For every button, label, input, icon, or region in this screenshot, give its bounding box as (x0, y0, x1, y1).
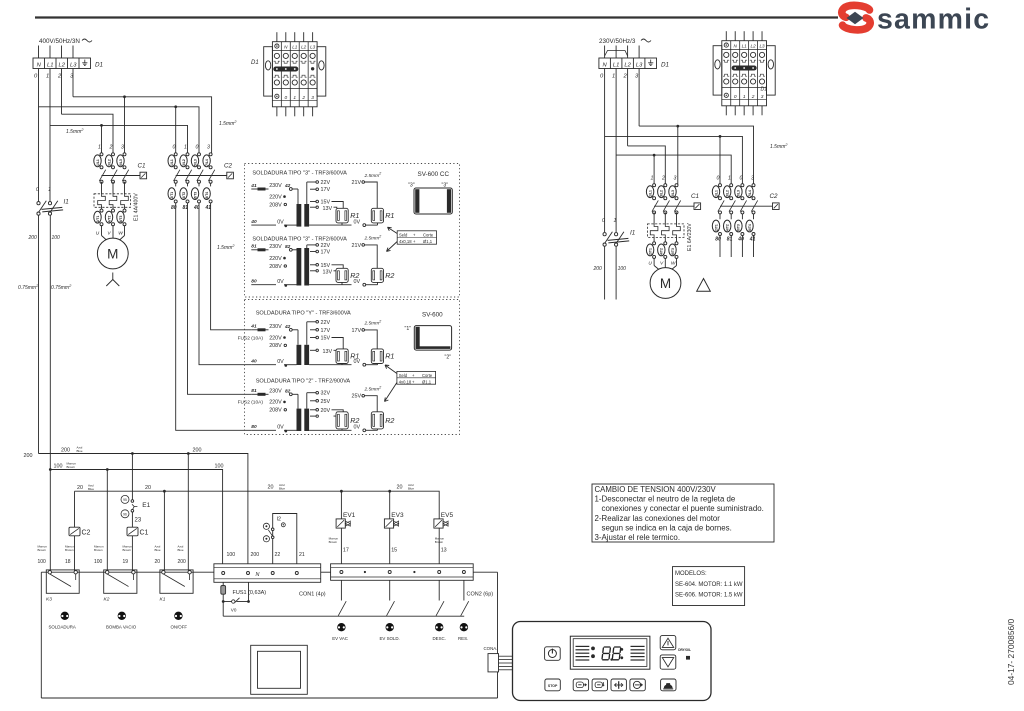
svg-text:Corte: Corte (422, 373, 433, 378)
svg-text:D1: D1 (761, 87, 768, 93)
svg-text:81: 81 (251, 388, 257, 394)
svg-text:04-17- 2700856/0: 04-17- 2700856/0 (1006, 619, 1016, 685)
svg-text:CON1 (4p): CON1 (4p) (299, 592, 326, 598)
svg-text:0V: 0V (277, 425, 284, 431)
svg-text:5/L3: 5/L3 (737, 190, 741, 197)
svg-text:22V: 22V (321, 180, 331, 186)
svg-text:100: 100 (227, 552, 236, 558)
svg-text:R2: R2 (385, 416, 394, 425)
svg-text:2/T1: 2/T1 (714, 224, 718, 231)
svg-text:220V: 220V (269, 256, 282, 262)
svg-text:Brown: Brown (94, 548, 103, 552)
svg-text:13V: 13V (323, 269, 333, 275)
svg-text:1-Desconectar el neutro de la: 1-Desconectar el neutro de la regleta de (595, 495, 736, 504)
svg-text:0: 0 (173, 145, 176, 151)
svg-text:4x0,18: 4x0,18 (399, 239, 412, 244)
svg-text:L1: L1 (47, 62, 53, 68)
svg-text:220V: 220V (269, 335, 282, 341)
svg-text:C2: C2 (224, 163, 233, 170)
svg-text:6/T3: 6/T3 (193, 192, 197, 199)
svg-text:208V: 208V (269, 202, 282, 208)
svg-text:Blue: Blue (279, 486, 285, 490)
svg-text:3: 3 (761, 94, 764, 100)
svg-text:25V: 25V (352, 394, 362, 400)
svg-text:96: 96 (123, 513, 127, 517)
svg-text:100: 100 (38, 559, 47, 565)
svg-text:6/T3: 6/T3 (671, 248, 675, 255)
svg-text:0: 0 (740, 176, 743, 182)
svg-text:I1: I1 (630, 230, 635, 237)
svg-text:EV3: EV3 (391, 512, 404, 519)
svg-text:K1: K1 (160, 597, 166, 603)
svg-text:L1: L1 (613, 62, 619, 68)
svg-text:0: 0 (717, 176, 720, 182)
svg-text:20: 20 (77, 485, 83, 491)
svg-text:22: 22 (275, 552, 281, 558)
svg-text:4x0,18: 4x0,18 (399, 379, 412, 384)
svg-text:220V: 220V (269, 400, 282, 406)
svg-text:1/L1: 1/L1 (96, 159, 100, 166)
svg-text:Brown: Brown (67, 465, 76, 469)
svg-text:208V: 208V (269, 264, 282, 270)
svg-text:L2: L2 (751, 43, 757, 48)
svg-text:L3: L3 (70, 62, 77, 68)
svg-text:17: 17 (343, 548, 349, 554)
svg-text:C1: C1 (138, 163, 146, 170)
svg-text:Blue: Blue (408, 486, 414, 490)
svg-text:"2": "2" (445, 355, 452, 361)
svg-text:2/T1: 2/T1 (648, 248, 652, 255)
svg-text:4/T2: 4/T2 (660, 248, 664, 255)
svg-text:7/L4: 7/L4 (205, 159, 209, 166)
svg-text:SOLDADURA TIPO "3" - TRF3/600V: SOLDADURA TIPO "3" - TRF3/600VA (252, 171, 347, 177)
svg-text:E1: E1 (142, 502, 150, 509)
svg-text:Corte: Corte (423, 232, 434, 237)
svg-text:21: 21 (299, 552, 305, 558)
svg-text:208V: 208V (269, 408, 282, 414)
svg-text:SV-600: SV-600 (422, 312, 443, 319)
svg-text:1: 1 (728, 176, 731, 182)
svg-text:0.75mm2: 0.75mm2 (51, 283, 72, 291)
svg-text:Blue: Blue (88, 487, 94, 491)
svg-text:R1: R1 (385, 352, 394, 361)
svg-text:22V: 22V (321, 320, 331, 326)
svg-text:EV1: EV1 (343, 512, 356, 519)
svg-text:200: 200 (251, 552, 260, 558)
svg-text:1: 1 (612, 74, 615, 80)
svg-text:15V: 15V (321, 200, 331, 206)
svg-text:3: 3 (751, 176, 754, 182)
svg-text:5/L3: 5/L3 (119, 159, 123, 166)
svg-text:4/T2: 4/T2 (107, 216, 111, 223)
svg-text:3/L2: 3/L2 (107, 159, 111, 166)
svg-text:80: 80 (251, 424, 257, 430)
svg-text:SV-600 CC: SV-600 CC (418, 171, 450, 178)
svg-text:CAMBIO DE TENSION 400V/230V: CAMBIO DE TENSION 400V/230V (595, 485, 717, 494)
svg-text:21V: 21V (352, 180, 362, 186)
svg-text:C1: C1 (691, 193, 699, 200)
svg-text:208V: 208V (269, 343, 282, 349)
svg-text:23: 23 (135, 518, 142, 524)
svg-text:"3": "3" (408, 183, 415, 189)
svg-text:RES.: RES. (458, 636, 468, 641)
svg-text:230V: 230V (269, 183, 282, 189)
svg-text:6/T3: 6/T3 (119, 216, 123, 223)
svg-text:Blue: Blue (155, 548, 161, 552)
svg-text:Brown: Brown (123, 548, 132, 552)
svg-text:230V/50Hz/3: 230V/50Hz/3 (599, 38, 636, 45)
svg-text:20: 20 (145, 485, 151, 491)
svg-text:1: 1 (651, 176, 654, 182)
svg-text:L2: L2 (58, 62, 65, 68)
svg-text:2-Realizar las conexiones del: 2-Realizar las conexiones del motor (595, 514, 721, 523)
svg-text:R2: R2 (350, 416, 359, 425)
svg-text:W: W (118, 231, 123, 237)
svg-text:40: 40 (737, 237, 744, 243)
svg-text:3: 3 (121, 145, 124, 151)
svg-text:13V: 13V (323, 349, 333, 355)
svg-text:D1: D1 (661, 62, 669, 69)
svg-text:32V: 32V (321, 391, 331, 397)
svg-text:25V: 25V (321, 399, 331, 405)
svg-text:L2: L2 (624, 62, 631, 68)
svg-text:FUS2 (10A): FUS2 (10A) (238, 335, 264, 341)
svg-text:SE-604. MOTOR: 1.1 kW: SE-604. MOTOR: 1.1 kW (675, 582, 743, 588)
svg-text:M: M (660, 276, 671, 291)
svg-text:20: 20 (268, 485, 274, 491)
svg-text:Brown: Brown (435, 540, 444, 544)
svg-text:100: 100 (54, 464, 63, 470)
svg-text:5/L3: 5/L3 (671, 190, 675, 197)
svg-text:Seld: Seld (399, 232, 408, 237)
svg-text:R1: R1 (385, 211, 394, 220)
svg-text:17V: 17V (321, 187, 331, 193)
svg-text:1/L1: 1/L1 (714, 190, 718, 197)
svg-text:1: 1 (48, 187, 51, 193)
svg-text:81: 81 (251, 244, 257, 250)
svg-text:SOLDADURA TIPO "Y" - TRF3/600V: SOLDADURA TIPO "Y" - TRF3/600VA (256, 311, 351, 317)
svg-text:U: U (96, 231, 100, 237)
svg-text:L3: L3 (636, 62, 643, 68)
svg-text:18: 18 (65, 559, 71, 565)
svg-text:SOLDADURA TIPO "3" - TRF2/600V: SOLDADURA TIPO "3" - TRF2/600VA (252, 237, 347, 243)
svg-text:EV SOLD.: EV SOLD. (380, 636, 400, 641)
svg-text:220V: 220V (269, 194, 282, 200)
svg-text:230V: 230V (269, 389, 282, 395)
svg-text:D1: D1 (251, 60, 259, 66)
svg-text:2: 2 (109, 145, 113, 151)
svg-text:0V: 0V (277, 220, 284, 226)
svg-text:3-Ajustar el rele termico.: 3-Ajustar el rele termico. (595, 533, 681, 542)
svg-text:Ø1,1: Ø1,1 (422, 379, 432, 384)
svg-text:2/T1: 2/T1 (170, 192, 174, 199)
svg-text:15: 15 (391, 548, 397, 554)
svg-text:0V: 0V (354, 220, 361, 226)
svg-text:20: 20 (155, 559, 161, 565)
svg-text:1: 1 (184, 145, 187, 151)
svg-text:STOP: STOP (548, 684, 558, 688)
svg-text:41: 41 (250, 324, 257, 330)
svg-text:200: 200 (61, 448, 70, 454)
svg-text:C2: C2 (82, 530, 91, 537)
svg-text:FUS1 (0,63A): FUS1 (0,63A) (233, 590, 267, 596)
svg-text:FUS2 (10A): FUS2 (10A) (238, 400, 264, 406)
svg-text:40: 40 (250, 219, 257, 225)
svg-text:0V: 0V (277, 359, 284, 365)
svg-text:L1: L1 (292, 44, 298, 49)
svg-text:3: 3 (311, 95, 314, 101)
svg-text:7/L4: 7/L4 (748, 190, 752, 197)
svg-text:3: 3 (207, 145, 210, 151)
svg-text:Ø1,1: Ø1,1 (423, 239, 433, 244)
svg-text:2: 2 (301, 95, 305, 101)
svg-text:1: 1 (614, 218, 617, 224)
svg-text:L1: L1 (742, 43, 748, 48)
svg-text:CON2 (6p): CON2 (6p) (467, 592, 494, 598)
svg-text:Blue: Blue (178, 548, 184, 552)
svg-text:20V: 20V (321, 408, 331, 414)
svg-text:230V: 230V (269, 244, 282, 250)
svg-text:17V: 17V (352, 328, 362, 334)
svg-text:MODELOS:: MODELOS: (675, 571, 707, 577)
svg-text:I1: I1 (64, 199, 69, 206)
svg-text:40: 40 (250, 359, 257, 365)
svg-text:1: 1 (46, 74, 49, 80)
svg-text:segun se indica en la caja de: segun se indica en la caja de bornes. (602, 523, 732, 532)
svg-text:SE-606. MOTOR: 1.5 kW: SE-606. MOTOR: 1.5 kW (675, 592, 743, 598)
svg-text:19: 19 (123, 559, 129, 565)
svg-text:0V: 0V (354, 279, 361, 285)
svg-text:4/T2: 4/T2 (182, 192, 186, 199)
svg-text:CONA.: CONA. (484, 646, 498, 651)
svg-text:100: 100 (94, 559, 103, 565)
svg-text:15V: 15V (321, 336, 331, 342)
svg-text:17V: 17V (321, 328, 331, 334)
svg-text:21V: 21V (352, 243, 362, 249)
svg-text:8/T4: 8/T4 (205, 192, 209, 199)
svg-text:0V: 0V (277, 279, 284, 285)
svg-text:DESC.: DESC. (433, 636, 446, 641)
svg-text:sammic: sammic (877, 4, 990, 36)
svg-text:W: W (671, 261, 676, 267)
svg-text:3/L2: 3/L2 (660, 190, 664, 197)
svg-text:U: U (648, 261, 652, 267)
svg-text:3/L2: 3/L2 (726, 190, 730, 197)
svg-text:conexiones y conectar el puent: conexiones y conectar el puente suminist… (602, 504, 764, 513)
svg-text:Brown: Brown (329, 540, 338, 544)
svg-text:100: 100 (215, 464, 224, 470)
svg-text:1/L1: 1/L1 (648, 190, 652, 197)
svg-text:1/L1: 1/L1 (170, 159, 174, 166)
svg-text:2: 2 (661, 176, 665, 182)
svg-text:200: 200 (193, 448, 202, 454)
svg-text:0V: 0V (354, 425, 361, 431)
svg-text:3: 3 (674, 176, 677, 182)
svg-text:N: N (256, 572, 260, 578)
svg-text:C1: C1 (140, 530, 149, 537)
svg-text:D1: D1 (95, 62, 103, 69)
svg-text:230V: 230V (269, 324, 282, 330)
svg-text:200: 200 (28, 235, 38, 241)
svg-text:K3: K3 (46, 597, 52, 603)
svg-text:100: 100 (618, 266, 627, 272)
svg-text:0: 0 (36, 187, 39, 193)
svg-text:15V: 15V (321, 263, 331, 269)
svg-text:0: 0 (734, 94, 737, 100)
svg-text:C2: C2 (770, 193, 779, 200)
svg-text:42: 42 (284, 324, 291, 330)
svg-text:41: 41 (250, 183, 257, 189)
svg-text:Brown: Brown (65, 548, 74, 552)
svg-text:V0: V0 (231, 608, 237, 613)
svg-text:0: 0 (196, 145, 199, 151)
svg-text:Blue: Blue (77, 449, 83, 453)
svg-text:1: 1 (743, 94, 746, 100)
svg-text:"1": "1" (405, 326, 412, 332)
svg-text:3/L2: 3/L2 (182, 159, 186, 166)
svg-text:200: 200 (24, 453, 33, 459)
svg-text:R2: R2 (385, 271, 394, 280)
svg-text:400V/50Hz/3N: 400V/50Hz/3N (39, 38, 80, 45)
svg-text:E1 4A/400V: E1 4A/400V (134, 193, 140, 221)
svg-text:BOMBA VACIO: BOMBA VACIO (106, 625, 137, 630)
svg-text:Brown: Brown (38, 548, 47, 552)
svg-text:13V: 13V (323, 206, 333, 212)
svg-text:EV VAC: EV VAC (332, 636, 348, 641)
svg-text:SOLDADURA TIPO "2" - TRF2/900V: SOLDADURA TIPO "2" - TRF2/900VA (256, 379, 351, 385)
svg-text:81: 81 (727, 237, 733, 243)
svg-text:200: 200 (593, 266, 603, 272)
svg-text:L3: L3 (310, 44, 316, 49)
svg-text:EV5: EV5 (441, 512, 454, 519)
svg-text:DRY/OIL: DRY/OIL (678, 648, 691, 652)
svg-text:95: 95 (123, 498, 127, 502)
svg-text:ON/OFF: ON/OFF (171, 625, 188, 630)
svg-text:22V: 22V (321, 243, 331, 249)
svg-text:5/L3: 5/L3 (193, 159, 197, 166)
svg-text:4/T2: 4/T2 (726, 224, 730, 231)
svg-text:42: 42 (284, 183, 291, 189)
svg-text:M: M (107, 246, 118, 261)
svg-text:1: 1 (98, 145, 101, 151)
svg-text:0V: 0V (354, 359, 361, 365)
svg-text:I2: I2 (277, 517, 282, 523)
svg-text:0: 0 (602, 218, 605, 224)
svg-text:82: 82 (285, 244, 291, 250)
svg-text:100: 100 (52, 235, 61, 241)
svg-text:2: 2 (751, 94, 755, 100)
svg-text:17V: 17V (321, 250, 331, 256)
svg-text:41: 41 (749, 237, 756, 243)
svg-text:K2: K2 (104, 597, 110, 603)
svg-text:0: 0 (284, 95, 287, 101)
svg-text:20: 20 (397, 485, 403, 491)
svg-text:82: 82 (285, 388, 291, 394)
svg-text:6/T3: 6/T3 (737, 224, 741, 231)
svg-text:Seld: Seld (399, 373, 408, 378)
svg-text:0.75mm2: 0.75mm2 (18, 283, 39, 291)
svg-text:L2: L2 (301, 44, 307, 49)
svg-text:80: 80 (251, 279, 257, 285)
svg-text:200: 200 (178, 559, 187, 565)
svg-text:13: 13 (441, 548, 447, 554)
svg-text:E1 6A/230V: E1 6A/230V (687, 223, 693, 251)
svg-text:L3: L3 (759, 43, 765, 48)
svg-text:1: 1 (293, 95, 296, 101)
svg-text:8/T4: 8/T4 (748, 224, 752, 231)
svg-text:SOLDADURA: SOLDADURA (49, 625, 76, 630)
svg-text:2/T1: 2/T1 (96, 216, 100, 223)
